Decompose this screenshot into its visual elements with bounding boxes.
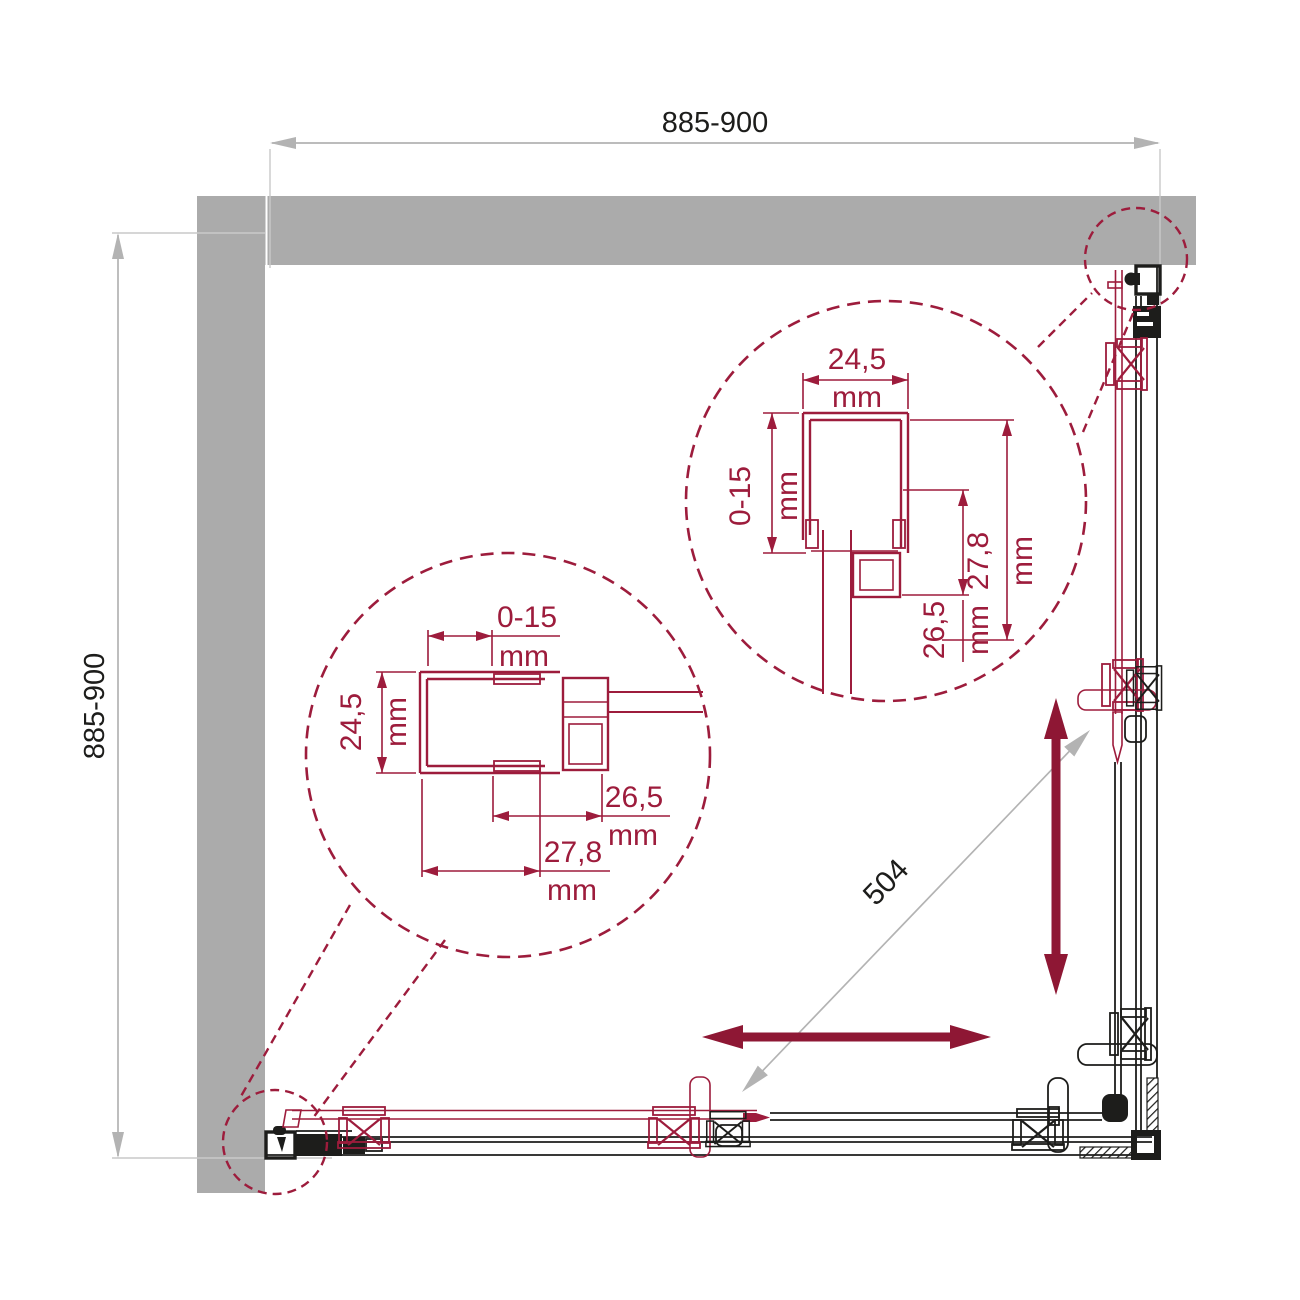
dim-label-depth-inner: 26,5 [605,781,663,814]
roller-bottom-right [1012,1109,1064,1150]
dim-unit: mm [832,381,882,414]
hatched-profile [1147,1078,1158,1133]
dim-unit: mm [771,471,804,521]
dim-label-depth-outer: 27,8 [544,836,602,869]
dim-label-diagonal: 504 [857,853,916,912]
arrowhead-top [112,233,124,259]
bracket-slot [1137,312,1149,316]
wall-profile-bottom-left [266,1110,382,1158]
roller-right-middle-fixed [1127,666,1162,710]
arrowhead-bottom [112,1132,124,1158]
slide-arrow-vertical [1044,698,1068,995]
dim-unit: mm [962,605,995,655]
dim-unit: mm [380,697,413,747]
hatched-profile [1080,1147,1133,1158]
callout-connector [1038,293,1092,347]
bracket-slot [1137,322,1153,326]
bracket-block [1131,273,1140,285]
profile-section-drawing [420,672,703,773]
dim-label-depth-inner: 26,5 [918,601,951,659]
dim-label-profile-width: 24,5 [335,693,368,751]
dim-unit: mm [1006,536,1039,586]
door-junction-bottom [690,1077,770,1157]
dim-label-depth-outer: 27,8 [962,532,995,590]
door-end-blade [1113,712,1122,762]
drawing-canvas: 885-900 885-900 504 [0,0,1300,1300]
roller-right-upper [1106,338,1147,390]
slide-arrow-horizontal [702,1025,991,1049]
profile-detail-bottom-left: 0-15 mm 24,5 mm 26,5 mm 27,8 mm [335,601,703,907]
roller-bottom-middle [648,1107,700,1148]
roller-bottom-left [338,1107,390,1148]
wall-left [197,196,265,1193]
callout-connector [313,940,445,1118]
wall-top [197,196,1196,265]
dim-label-adjustment: 0-15 [497,601,557,634]
dim-label-top-width: 885-900 [662,107,768,139]
roller-clusters [338,338,1162,1150]
profile-dimensions: 0-15 mm 24,5 mm 26,5 mm 27,8 mm [335,601,670,907]
dim-label-left-height: 885-900 [79,653,111,759]
dim-label-adjustment: 0-15 [724,466,757,526]
door-junction-right [1078,690,1156,762]
profile-dimensions: 24,5 mm 0-15 mm 27,8 mm 26,5 mm [724,343,1039,662]
dim-unit: mm [547,874,597,907]
arrowhead-left [270,137,296,149]
dim-label-profile-width: 24,5 [828,343,886,376]
corner-box-inner [1137,1136,1154,1153]
door-assembly-right [1048,265,1161,1160]
arrowhead-right [1134,137,1160,149]
bracket-wedge [277,1137,286,1152]
shower-enclosure-technical-drawing: 885-900 885-900 504 [0,0,1300,1300]
dim-unit: mm [608,819,658,852]
profile-detail-top-right: 24,5 mm 0-15 mm 27,8 mm 26,5 mm [724,343,1039,694]
roller-right-lower [1110,1008,1151,1060]
bracket-block [296,1134,342,1156]
dim-unit: mm [499,640,549,673]
corner-elbow [1102,1094,1128,1122]
callout-connector [1083,311,1134,432]
profile-section-drawing [803,413,908,694]
corner-bracket-vertical [1048,1078,1068,1152]
bracket-block [1147,294,1159,305]
